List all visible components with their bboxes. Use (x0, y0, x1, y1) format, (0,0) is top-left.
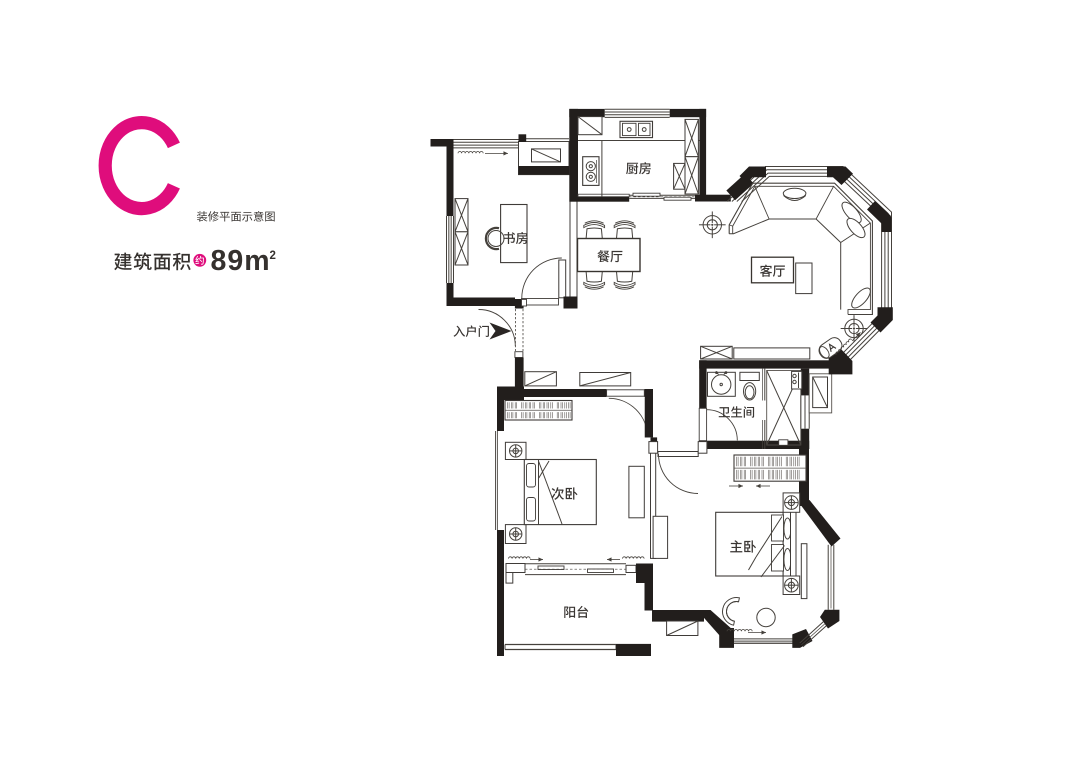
svg-text:2: 2 (270, 250, 276, 262)
svg-text:89m: 89m (211, 245, 271, 277)
